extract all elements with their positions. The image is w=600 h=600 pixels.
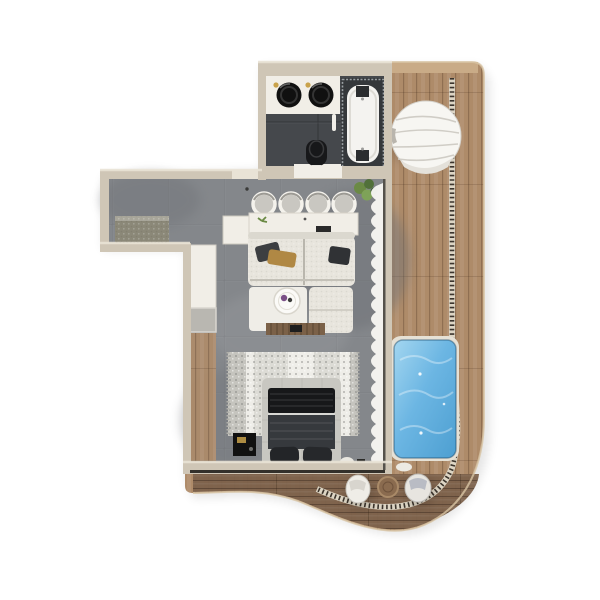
wall-bath-top	[258, 62, 392, 76]
bathroom	[262, 74, 385, 177]
wall-bath-right	[384, 62, 392, 180]
tub-fixture-bottom	[356, 150, 369, 161]
kitchen-bar-counter	[249, 213, 358, 235]
toilet-back-partition	[294, 166, 342, 178]
tv-console	[266, 323, 325, 335]
round-side-table	[378, 477, 398, 497]
shoe-cabinet	[223, 216, 249, 244]
nightstand	[233, 433, 256, 456]
wall-corridor-left	[100, 170, 109, 252]
wall-main-right-glass	[385, 179, 392, 474]
bar-stool	[280, 193, 302, 215]
round-coffee-table	[274, 288, 300, 314]
wardrobe	[189, 245, 216, 308]
flower-vase	[281, 295, 287, 301]
sectional-sofa	[248, 232, 355, 333]
closet-wood-floor	[188, 333, 216, 463]
double-bed	[262, 378, 341, 471]
bed-blanket	[268, 388, 335, 414]
pool-towel	[396, 463, 412, 472]
floor-plan-svg	[0, 0, 600, 600]
entry-door-leaf	[232, 170, 262, 179]
door-handle-dot	[245, 187, 248, 190]
bar-stool	[253, 193, 275, 215]
tub-fixture-top	[356, 86, 369, 97]
wall-main-left	[183, 243, 191, 474]
glass-line-right	[383, 179, 386, 470]
deck-top-edge-band	[392, 62, 478, 73]
faucet-left	[273, 82, 278, 87]
bathtub	[341, 78, 385, 170]
wall-bath-left	[258, 62, 266, 180]
swimming-pool	[390, 336, 459, 461]
bar-stool	[333, 193, 355, 215]
glass-track-bottom	[190, 470, 388, 473]
towel-rail	[332, 114, 336, 131]
wardrobe-lower-unit	[190, 308, 216, 332]
faucet-right	[305, 82, 310, 87]
counter-hob	[316, 226, 331, 233]
bar-stool	[307, 193, 329, 215]
floor-plan-render	[0, 0, 600, 600]
wall-corridor-bottom	[100, 243, 190, 252]
